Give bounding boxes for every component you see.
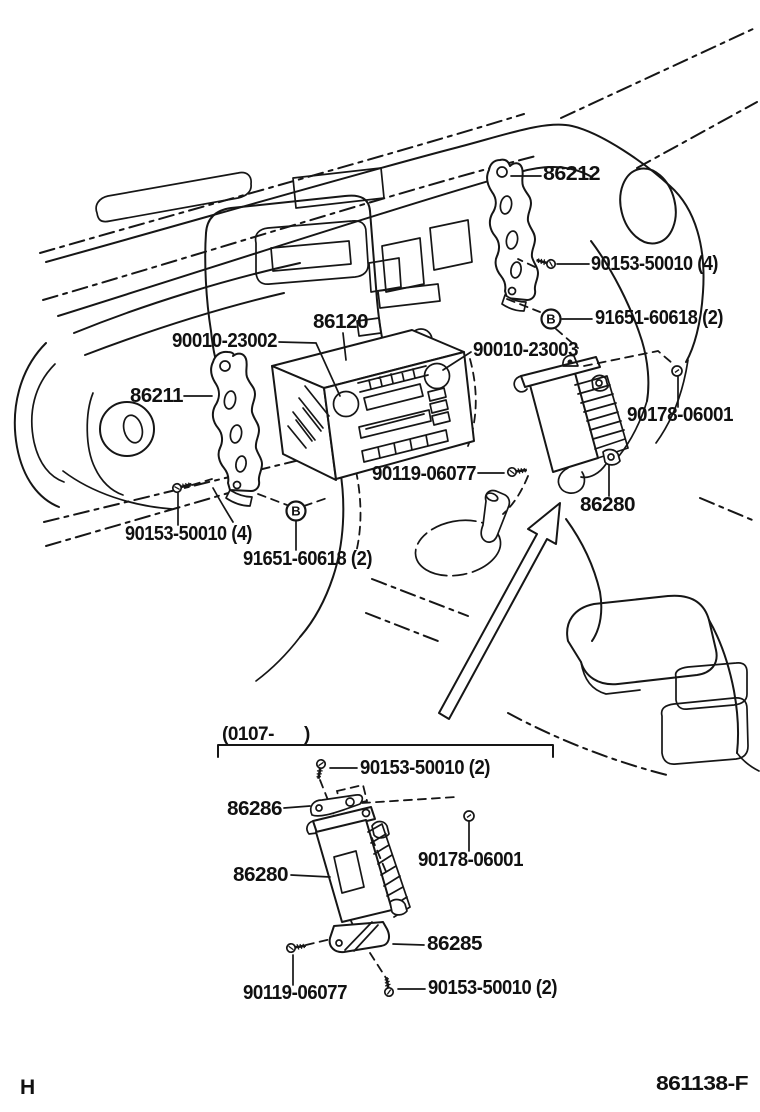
leader <box>291 875 330 877</box>
console-clip-edge <box>737 753 759 771</box>
parts-diagram-canvas: B B 86212 90153-50010 (4) 91651-60618 (2 <box>0 0 760 1112</box>
a-pillar-line-right <box>637 102 757 168</box>
callout-91651-60618-lower-left: 91651-60618 (2) <box>243 548 372 570</box>
screw-icon <box>382 976 394 996</box>
amp-sub-bottom-tab <box>390 900 407 915</box>
bracket-86211 <box>211 352 262 506</box>
armrest <box>567 596 716 685</box>
callout-90153-50010-lower-left: 90153-50010 (4) <box>125 523 252 545</box>
callout-90119-06077-main: 90119-06077 <box>372 463 476 485</box>
console-surface-line <box>366 613 443 643</box>
console-surface-line <box>372 579 468 616</box>
bracket-86212 <box>487 160 538 311</box>
armrest-front-seam <box>581 662 640 694</box>
callout-86286: 86286 <box>227 798 282 820</box>
page-letter: H <box>20 1076 35 1099</box>
windshield-pillar-line <box>43 156 536 300</box>
dashed-axis <box>304 497 330 506</box>
callout-90010-23002: 90010-23002 <box>172 330 277 352</box>
subsection-range-close: ) <box>304 724 310 745</box>
center-console-line-art <box>256 469 759 776</box>
amp-body <box>530 373 598 472</box>
callout-90153-50010-sub-top: 90153-50010 (2) <box>360 757 490 779</box>
dash-opening <box>430 220 472 270</box>
callout-90178-06001-sub: 90178-06001 <box>418 849 523 871</box>
screw-icon <box>535 256 556 269</box>
amplifier-86280-main <box>514 355 628 493</box>
center-vent-outer <box>256 221 369 284</box>
nut-icon <box>672 366 682 376</box>
parts-diagram-page: B B 86212 90153-50010 (4) 91651-60618 (2 <box>0 0 760 1112</box>
nut-icon <box>464 811 474 821</box>
dash-opening <box>382 238 424 292</box>
bolt-symbol-b: B <box>542 310 561 329</box>
amp-foot-hook <box>558 468 584 493</box>
bolt-symbol-b: B <box>287 502 306 521</box>
console-front-right-edge <box>566 519 601 641</box>
callout-86212: 86212 <box>543 163 600 185</box>
callout-86285: 86285 <box>427 933 482 955</box>
bracket-86211-foot <box>226 490 252 506</box>
screw-icon <box>507 466 527 477</box>
windshield-pillar-line <box>40 114 524 253</box>
callout-86120: 86120 <box>313 311 368 333</box>
callout-90153-50010-upper-right: 90153-50010 (4) <box>591 253 718 275</box>
amp-foot-strap <box>581 464 606 477</box>
callout-90010-23003: 90010-23003 <box>473 339 578 361</box>
callout-90178-06001-main: 90178-06001 <box>627 404 733 426</box>
center-stack-right-pillar <box>370 211 387 358</box>
subsection-range-open: (0107- <box>222 724 274 745</box>
screw-icon <box>286 942 306 953</box>
console-hidden-edge <box>356 471 361 553</box>
dashed-axis <box>258 494 287 505</box>
leader <box>393 944 424 945</box>
steering-column <box>100 402 154 456</box>
radio-unit-86120 <box>272 330 474 480</box>
steering-wheel-rim-inner <box>32 364 64 482</box>
bolt-symbol-b-letter: B <box>291 504 300 519</box>
leader <box>284 806 310 808</box>
dashed-axis <box>306 939 331 945</box>
bracket-86212-body <box>487 160 538 300</box>
figure-code: 861138-F <box>656 1073 748 1095</box>
callout-86280-main: 86280 <box>580 494 635 516</box>
callout-90119-06077-sub: 90119-06077 <box>243 982 347 1004</box>
screw-icon <box>314 759 326 779</box>
console-surface-line <box>700 498 757 522</box>
callout-86280-sub: 86280 <box>233 864 288 886</box>
shift-lever <box>481 491 509 543</box>
ignition-detail <box>121 413 146 445</box>
subsection-bracket-line <box>218 745 553 757</box>
a-pillar-line-right <box>561 29 753 118</box>
radio-knob-left <box>334 392 359 417</box>
callout-91651-60618-upper-right: 91651-60618 (2) <box>595 307 723 329</box>
callout-labels: 86212 90153-50010 (4) 91651-60618 (2) 86… <box>125 163 733 1004</box>
bolt-symbol-b-letter: B <box>546 312 555 327</box>
console-left-edge <box>256 637 300 681</box>
bracket-86285 <box>330 922 389 952</box>
speaker-opening <box>613 163 684 250</box>
callout-86211: 86211 <box>130 385 183 407</box>
callout-90153-50010-sub-bottom: 90153-50010 (2) <box>428 977 557 999</box>
dashed-axis <box>362 797 456 803</box>
dashed-axis <box>370 953 386 978</box>
